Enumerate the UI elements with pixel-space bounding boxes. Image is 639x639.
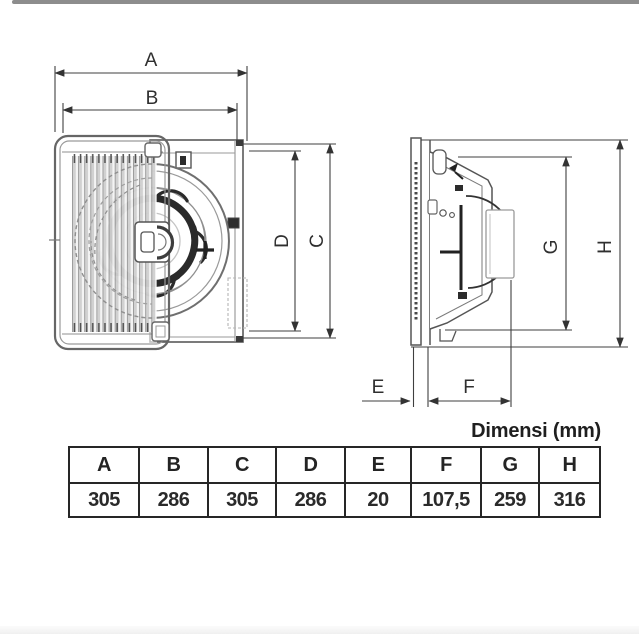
dim-label-E: E — [372, 377, 385, 398]
value-C: 305 — [208, 483, 276, 517]
dim-label-C: C — [307, 234, 328, 248]
value-G: 259 — [481, 483, 539, 517]
table-caption: Dimensi (mm) — [0, 420, 601, 443]
value-E: 20 — [345, 483, 411, 517]
dim-label-A: A — [145, 50, 158, 71]
header-F: F — [411, 447, 481, 483]
fan-hub — [135, 222, 173, 262]
value-F: 107,5 — [411, 483, 481, 517]
header-D: D — [276, 447, 345, 483]
dim-label-H: H — [595, 240, 616, 254]
table-header-row: A B C D E F G H — [69, 447, 600, 483]
dim-label-F: F — [463, 377, 475, 398]
dim-label-G: G — [541, 240, 562, 255]
technical-drawing: A B C D — [0, 0, 639, 639]
side-connector — [228, 218, 239, 228]
corner-mark-bottom — [236, 336, 243, 342]
fan-dimension-sheet: A B C D — [0, 0, 639, 639]
bottom-edge-shadow — [0, 626, 639, 634]
value-H: 316 — [539, 483, 600, 517]
grille-latch-top — [145, 143, 161, 157]
value-D: 286 — [276, 483, 345, 517]
dim-label-D: D — [272, 234, 293, 248]
value-A: 305 — [69, 483, 139, 517]
header-A: A — [69, 447, 139, 483]
header-H: H — [539, 447, 600, 483]
dimension-table: A B C D E F G H 305 286 305 286 20 107,5… — [68, 446, 601, 518]
grille-latch-bottom — [152, 322, 169, 341]
header-E: E — [345, 447, 411, 483]
header-C: C — [208, 447, 276, 483]
front-view-drawing — [49, 136, 247, 349]
header-G: G — [481, 447, 539, 483]
dim-label-B: B — [146, 88, 159, 109]
table-value-row: 305 286 305 286 20 107,5 259 316 — [69, 483, 600, 517]
body-foot — [440, 329, 456, 341]
value-B: 286 — [139, 483, 208, 517]
header-B: B — [139, 447, 208, 483]
